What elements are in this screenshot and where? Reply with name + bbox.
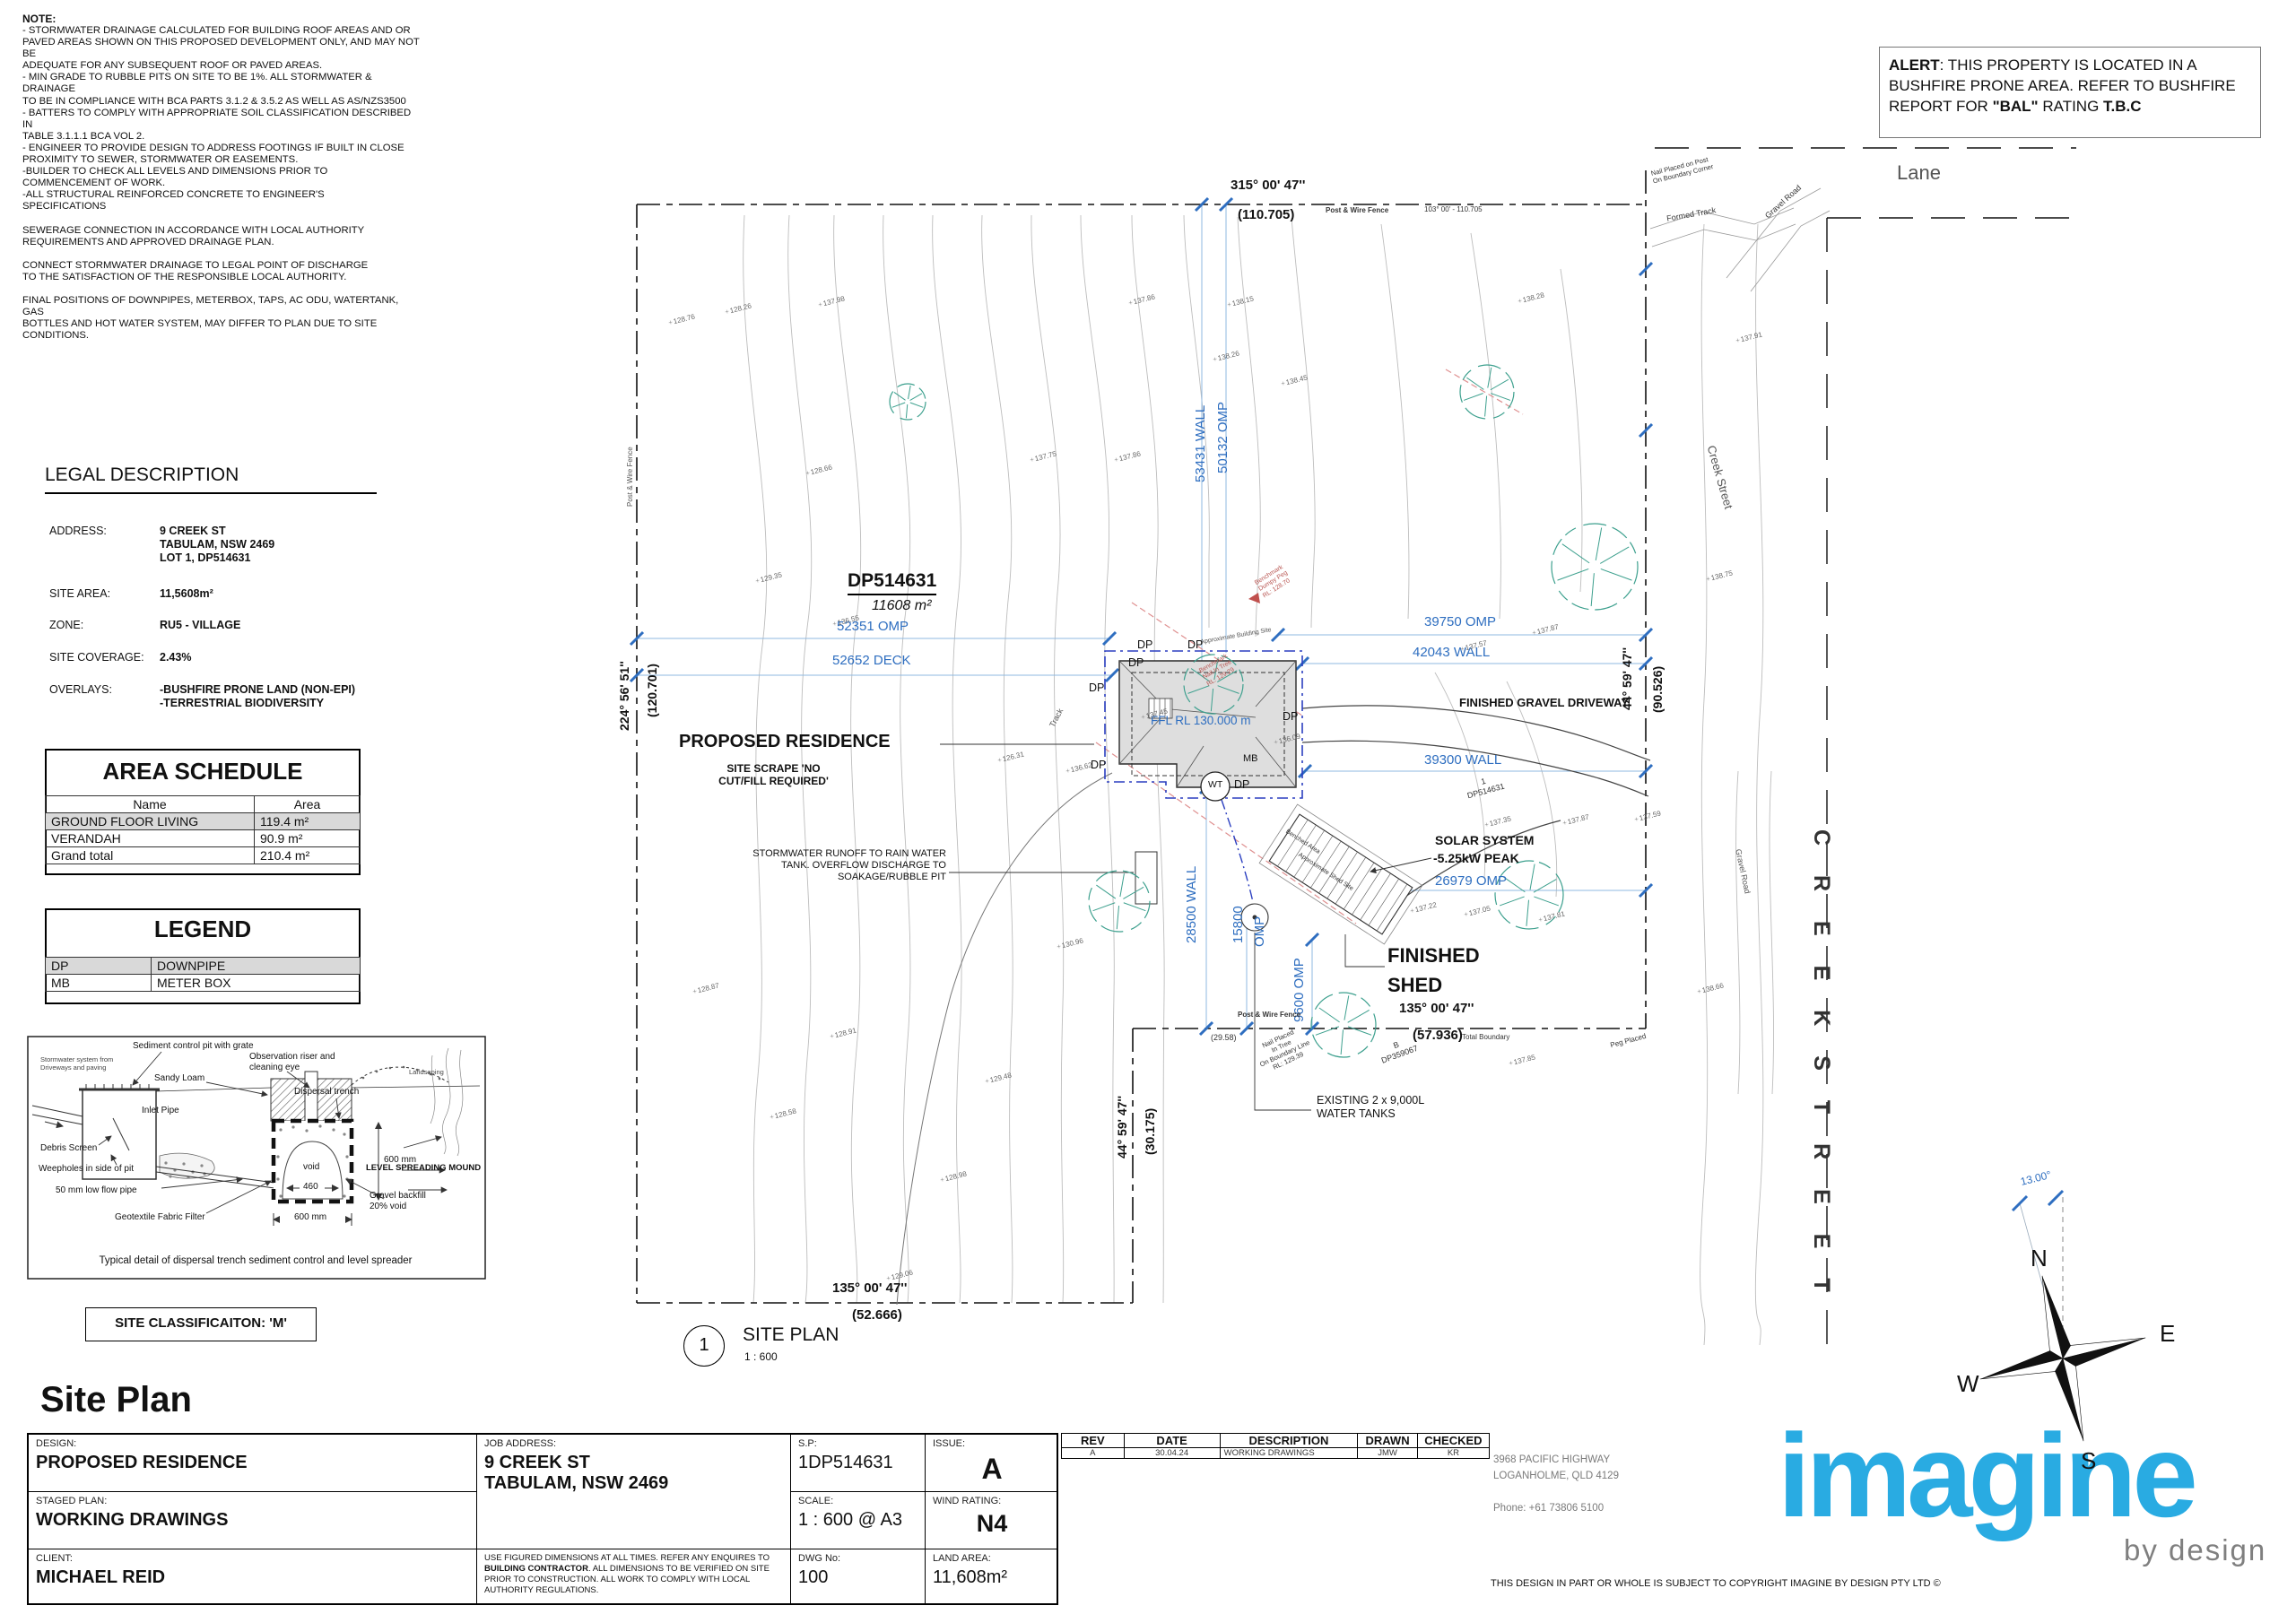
area-row-name: GROUND FLOOR LIVING — [46, 813, 255, 830]
dim-15800: 15800 — [1231, 906, 1247, 943]
detail-lowflow-label: 50 mm low flow pipe — [56, 1185, 137, 1196]
ffl-level: FFL RL 130.000 m — [1151, 714, 1251, 728]
copyright-line: THIS DESIGN IN PART OR WHOLE IS SUBJECT … — [1491, 1578, 1941, 1590]
shed-leader — [1345, 934, 1385, 967]
legal-value-sitearea: 11,5608m² — [160, 587, 213, 601]
issue-label: ISSUE: — [926, 1435, 1058, 1449]
lot-area: 11608 m² — [872, 598, 931, 615]
sp-value: 1DP514631 — [791, 1449, 925, 1473]
creek-street-big-label: C R E E K S T R E E T — [1808, 829, 1835, 1304]
bearing-bottom: 135° 00' 47'' — [832, 1280, 907, 1297]
design-value: PROPOSED RESIDENCE — [29, 1449, 476, 1473]
legend-desc: METER BOX — [152, 975, 361, 992]
bearing-left: 224° 56' 51'' — [617, 661, 632, 731]
area-row-value: 210.4 m² — [255, 847, 361, 864]
bearing-right: 44° 59' 47'' — [1620, 647, 1635, 710]
legend: LEGEND DP DOWNPIPE MB METER BOX — [45, 908, 361, 1004]
site-classification: SITE CLASSIFICAITON: 'M' — [86, 1315, 316, 1332]
dim-39300-wall: 39300 WALL — [1424, 752, 1501, 768]
table-row: DP DOWNPIPE — [46, 958, 361, 975]
distance-bottom-left: (30.175) — [1143, 1108, 1158, 1155]
legend-title: LEGEND — [47, 916, 359, 943]
site-plan-sheet: NOTE: - STORMWATER DRAINAGE CALCULATED F… — [0, 0, 2296, 1623]
overflow-line — [1222, 800, 1253, 902]
table-row: GROUND FLOOR LIVING 119.4 m² — [46, 813, 361, 830]
solar-leader — [1370, 858, 1431, 872]
tree-icon — [1460, 365, 1514, 419]
tb-note-bold: BUILDING CONTRACTOR — [484, 1564, 588, 1574]
rev-header: DRAWN — [1358, 1434, 1418, 1448]
total-boundary-label: Total Boundary — [1462, 1033, 1509, 1041]
company-address-1: 3968 PACIFIC HIGHWAY — [1493, 1454, 1610, 1467]
scale-label: SCALE: — [791, 1492, 925, 1506]
staged-plan-value: WORKING DRAWINGS — [29, 1506, 476, 1531]
table-row: VERANDAH 90.9 m² — [46, 830, 361, 847]
stormwater-note: STORMWATER RUNOFF TO RAIN WATER TANK. OV… — [717, 848, 946, 883]
alert-bal: "BAL" — [1993, 98, 2039, 115]
detail-600h-label: 600 mm — [294, 1212, 326, 1223]
proposed-residence-label: PROPOSED RESIDENCE — [679, 732, 891, 753]
rev-cell: WORKING DRAWINGS — [1220, 1448, 1358, 1459]
dwg-no-label: DWG No: — [791, 1549, 925, 1564]
client-label: CLIENT: — [29, 1549, 476, 1564]
legal-value-coverage: 2.43% — [160, 651, 191, 664]
view-number-bubble: 1 — [683, 1325, 725, 1367]
rev-cell: 30.04.24 — [1124, 1448, 1220, 1459]
driveway-label: FINISHED GRAVEL DRIVEWAY — [1459, 696, 1629, 709]
revision-table: REV DATE DESCRIPTION DRAWN CHECKED A 30.… — [1061, 1433, 1490, 1459]
legal-label-address: ADDRESS: — [49, 525, 107, 538]
rev-cell: KR — [1417, 1448, 1489, 1459]
legal-value-zone: RU5 - VILLAGE — [160, 619, 240, 632]
fence-top-dim: 103° 00' - 110.705 — [1424, 205, 1483, 213]
land-area-value: 11,608m² — [926, 1564, 1058, 1588]
detail-void-label: void — [303, 1162, 319, 1173]
site-classification-box: SITE CLASSIFICAITON: 'M' — [85, 1307, 317, 1341]
fence-top-label: Post & Wire Fence — [1326, 206, 1388, 214]
legal-label-overlays: OVERLAYS: — [49, 683, 112, 697]
area-schedule: AREA SCHEDULE Name Area GROUND FLOOR LIV… — [45, 749, 361, 875]
design-label: DESIGN: — [29, 1435, 476, 1449]
area-row-value: 119.4 m² — [255, 813, 361, 830]
area-col-name: Name — [46, 796, 255, 813]
dim-28500-wall: 28500 WALL — [1184, 866, 1200, 943]
lane-label: Lane — [1897, 161, 1941, 185]
bearing-bottom-mid: 135° 00' 47'' — [1399, 1001, 1474, 1017]
rev-header: DESCRIPTION — [1220, 1434, 1358, 1448]
declination-angle: 13.00° — [2019, 1168, 2052, 1188]
alert-text-2: RATING — [2039, 98, 2103, 115]
distance-bottom-mid: (57.936) — [1413, 1028, 1463, 1044]
table-row: A 30.04.24 WORKING DRAWINGS JMW KR — [1062, 1448, 1490, 1459]
legend-desc: DOWNPIPE — [152, 958, 361, 975]
fence-bottom-dim: (29.58) — [1211, 1033, 1237, 1043]
detail-gravelbackfill-label: Gravel backfill 20% void — [370, 1191, 426, 1212]
detail-debris-label: Debris Screen — [40, 1143, 97, 1154]
staged-plan-label: STAGED PLAN: — [29, 1492, 476, 1506]
land-area-label: LAND AREA: — [926, 1549, 1058, 1564]
dwg-no-value: 100 — [791, 1564, 925, 1588]
finished-shed-label-2: SHED — [1387, 974, 1442, 997]
legal-value-address: 9 CREEK ST TABULAM, NSW 2469 LOT 1, DP51… — [160, 525, 274, 564]
detail-inletpipe-label: Inlet Pipe — [142, 1106, 179, 1116]
dim-52652-deck: 52652 DECK — [832, 653, 911, 669]
bearing-top: 315° 00' 47'' — [1231, 178, 1305, 194]
downpipe-marker: DP — [1283, 710, 1298, 723]
detail-landscaping-label: Landsaping — [409, 1069, 444, 1077]
fence-bottom-label: Post & Wire Fence — [1238, 1011, 1300, 1019]
area-col-area: Area — [255, 796, 361, 813]
downpipe-marker: DP — [1089, 681, 1104, 694]
finished-shed-label-1: FINISHED — [1387, 944, 1480, 968]
dim-26979-omp: 26979 OMP — [1435, 873, 1507, 890]
distance-bottom: (52.666) — [852, 1307, 902, 1324]
notes-body: - STORMWATER DRAINAGE CALCULATED FOR BUI… — [22, 25, 422, 343]
compass-tick — [2013, 1196, 2027, 1211]
finished-shed-building — [1259, 804, 1422, 944]
legend-key: MB — [46, 975, 152, 992]
company-address-2: LOGANHOLME, QLD 4129 — [1493, 1471, 1619, 1483]
view-scale: 1 : 600 — [744, 1350, 778, 1363]
client-value: MICHAEL REID — [29, 1564, 476, 1588]
table-row: Grand total 210.4 m² — [46, 847, 361, 864]
tree-icon — [890, 384, 926, 420]
company-logo-sub: by design — [2124, 1533, 2266, 1568]
site-scrape-note: SITE SCRAPE 'NO CUT/FILL REQUIRED' — [691, 762, 857, 787]
detail-observation-label: Observation riser and cleaning eye — [249, 1052, 335, 1073]
detail-caption: Typical detail of dispersal trench sedim… — [54, 1255, 457, 1268]
distance-right: (90.526) — [1650, 666, 1665, 713]
compass-e: E — [2160, 1320, 2175, 1347]
water-tanks-label: EXISTING 2 x 9,000L WATER TANKS — [1317, 1094, 1424, 1121]
company-phone: Phone: +61 73806 5100 — [1493, 1503, 1604, 1515]
rev-header: CHECKED — [1417, 1434, 1489, 1448]
rev-header: REV — [1062, 1434, 1125, 1448]
lot-dp-title: DP514631 — [848, 570, 936, 595]
page-title: Site Plan — [40, 1379, 192, 1421]
detail-weepholes-label: Weepholes in side of pit — [39, 1164, 134, 1175]
legal-label-sitearea: SITE AREA: — [49, 587, 110, 601]
mb-marker: MB — [1243, 753, 1258, 765]
downpipe-marker: DP — [1091, 759, 1106, 771]
north-compass: 13.00° N E S W — [1955, 1157, 2224, 1462]
bushfire-alert-box: ALERT: THIS PROPERTY IS LOCATED IN A BUS… — [1879, 47, 2261, 138]
detail-460-label: 460 — [303, 1182, 318, 1193]
solar-system-label: SOLAR SYSTEM — [1435, 833, 1534, 848]
compass-n: N — [2031, 1245, 2048, 1271]
bearing-bottom-left: 44° 59' 47'' — [1115, 1096, 1130, 1159]
alert-word: ALERT — [1889, 56, 1940, 74]
title-block: DESIGN: PROPOSED RESIDENCE STAGED PLAN: … — [27, 1433, 1058, 1605]
dim-39750-omp: 39750 OMP — [1424, 614, 1496, 630]
wind-rating-label: WIND RATING: — [926, 1492, 1058, 1506]
compass-tick — [2048, 1191, 2063, 1205]
detail-stormsys-label: Stormwater system from Driveways and pav… — [40, 1056, 113, 1072]
view-title: SITE PLAN — [743, 1324, 839, 1347]
sp-label: S.P: — [791, 1435, 925, 1449]
tree-icon — [1552, 524, 1638, 610]
downpipe-marker: DP — [1137, 638, 1152, 651]
site-plan-drawing — [610, 54, 1883, 1372]
table-row: MB METER BOX — [46, 975, 361, 992]
notes-title: NOTE: — [22, 13, 56, 25]
dim-53431-wall: 53431 WALL — [1193, 405, 1209, 482]
detail-sediment-label: Sediment control pit with grate — [133, 1041, 254, 1052]
downpipe-marker: DP — [1234, 778, 1249, 791]
rev-header: DATE — [1124, 1434, 1220, 1448]
legend-key: DP — [46, 958, 152, 975]
downpipe-marker: DP — [1128, 656, 1144, 669]
legal-label-coverage: SITE COVERAGE: — [49, 651, 144, 664]
compass-w: W — [1957, 1370, 1979, 1397]
wind-rating-value: N4 — [926, 1506, 1058, 1538]
legal-label-zone: ZONE: — [49, 619, 83, 632]
job-address-value: 9 CREEK ST TABULAM, NSW 2469 — [477, 1449, 790, 1494]
rev-cell: A — [1062, 1448, 1125, 1459]
wt-marker: WT — [1208, 779, 1222, 790]
solar-peak-label: -5.25kW PEAK — [1433, 851, 1519, 866]
tb-note-pre: USE FIGURED DIMENSIONS AT ALL TIMES. REF… — [484, 1553, 770, 1563]
detail-sandyloam-label: Sandy Loam — [154, 1073, 204, 1084]
legal-heading: LEGAL DESCRIPTION — [45, 464, 377, 494]
detail-dispersal-label: Dispersal trench — [294, 1087, 359, 1098]
track-edges — [1650, 188, 1830, 291]
area-row-name: VERANDAH — [46, 830, 255, 847]
detail-geotextile-label: Geotextile Fabric Filter — [115, 1212, 205, 1223]
downpipe-marker: DP — [1187, 638, 1203, 651]
compass-s: S — [2081, 1447, 2096, 1474]
fence-left-label: Post & Wire Fence — [626, 447, 634, 507]
distance-top: (110.705) — [1238, 207, 1294, 223]
rev-cell: JMW — [1358, 1448, 1418, 1459]
dim-50132-omp: 50132 OMP — [1215, 402, 1231, 473]
alert-tbc: T.B.C — [2103, 98, 2142, 115]
legal-value-overlays: -BUSHFIRE PRONE LAND (NON-EPI) -TERRESTR… — [160, 683, 355, 710]
distance-left: (120.701) — [645, 664, 660, 717]
area-row-name: Grand total — [46, 847, 255, 864]
job-address-label: JOB ADDRESS: — [477, 1435, 790, 1449]
tree-icon — [1311, 993, 1376, 1057]
detail-levelmound-label: LEVEL SPREADING MOUND — [366, 1163, 481, 1173]
scale-value: 1 : 600 @ A3 — [791, 1506, 925, 1531]
dim-15800-omp: OMP — [1252, 916, 1268, 947]
area-row-value: 90.9 m² — [255, 830, 361, 847]
area-schedule-title: AREA SCHEDULE — [47, 758, 359, 785]
benchmark-marker — [1248, 593, 1260, 603]
issue-value: A — [926, 1449, 1058, 1486]
